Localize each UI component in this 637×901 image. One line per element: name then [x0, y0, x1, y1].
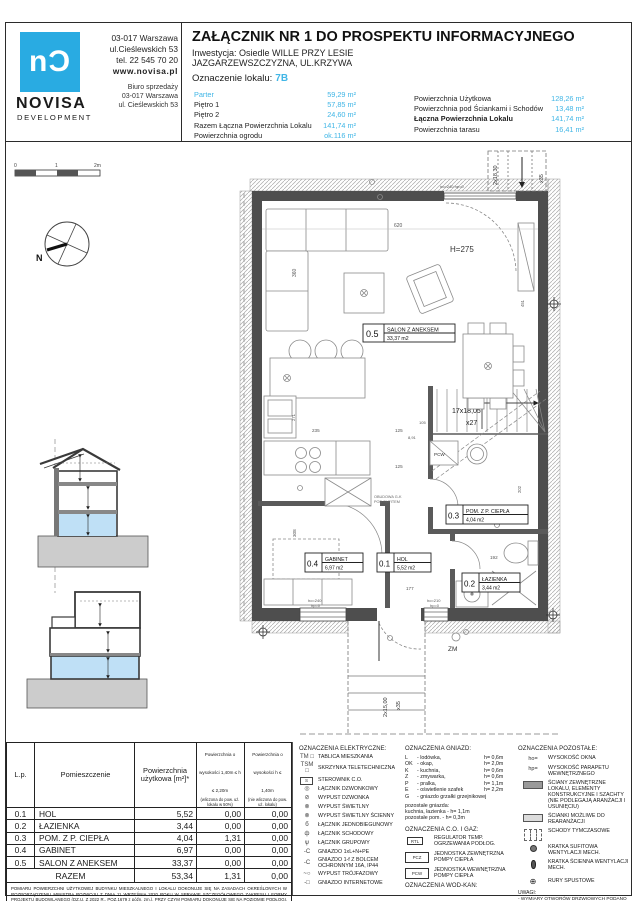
compass-icon: N	[36, 222, 89, 266]
room-label-salon: 0.5 SALON Z ANEKSEM 33,37 m2	[363, 324, 455, 342]
ceiling-vent-icon	[530, 845, 537, 852]
unit-designation: Oznaczenie lokalu:7B	[192, 73, 621, 84]
table-footnote: POMIARU POWIERZCHNI UŻYTKOWEJ BUDYNKU MI…	[6, 883, 292, 901]
legend-other: OZNACZENIA POZOSTAŁE: ho=WYSOKOŚĆ OKNA h…	[512, 746, 629, 895]
svg-text:192: 192	[490, 555, 498, 560]
garden-door-arc	[379, 623, 421, 649]
table-total-row: RAZEM 53,341,310,00	[7, 869, 292, 883]
svg-text:2x15,00: 2x15,00	[383, 697, 389, 717]
table-row: 0.4GABINET 6,970,000,00	[7, 844, 292, 856]
stair-switch-icon: ф	[299, 832, 315, 838]
svg-text:271: 271	[291, 413, 296, 421]
room-label-hol: 0.1 HOL 5,52 m2	[377, 553, 431, 572]
svg-text:0.2: 0.2	[464, 580, 476, 589]
legend-area: OZNACZENIA ELEKTRYCZNE: TM □TABLICA MIES…	[293, 742, 631, 895]
area-table: L.p. Pomieszczenie Powierzchnia użytkowa…	[6, 742, 292, 883]
area-row: Powierzchnia pod Ściankami i Schodów13,4…	[414, 104, 584, 114]
svg-text:2x18,30: 2x18,30	[493, 165, 499, 185]
door-arc	[452, 541, 480, 569]
investment-line-1: Inwestycja: Osiedle WILLE PRZY LESIE	[192, 48, 621, 58]
temporary-stairs-icon	[524, 829, 542, 841]
legend-title: OZNACZENIA POZOSTAŁE:	[518, 746, 629, 752]
svg-text:HOL: HOL	[397, 557, 408, 563]
legend-title-wod-kan: OZNACZENIA WOD-KAN:	[405, 883, 512, 889]
table-row: 0.2ŁAZIENKA 3,440,000,00	[7, 820, 292, 832]
svg-text:POD SUFITEM: POD SUFITEM	[374, 500, 400, 504]
svg-text:125: 125	[395, 464, 403, 469]
area-row: Powierzchnia Użytkowa128,26 m²	[414, 94, 584, 104]
pcw-icon: PCW	[405, 868, 429, 879]
door-arc	[330, 503, 382, 555]
svg-text:x35: x35	[539, 174, 545, 183]
svg-text:6,97 m2: 6,97 m2	[325, 566, 343, 572]
svg-text:0: 0	[14, 163, 17, 169]
bottom-section: L.p. Pomieszczenie Powierzchnia użytkowa…	[6, 742, 631, 895]
movable-wall-swatch	[523, 814, 543, 822]
svg-text:ho=240 hp=0: ho=240 hp=0	[440, 184, 464, 189]
pcz-icon: PCZ	[405, 852, 429, 863]
building-section-flat	[27, 592, 147, 708]
svg-text:0.4: 0.4	[307, 560, 319, 569]
floor-plan-svg: 0 1 2m N	[6, 142, 631, 742]
novisa-logo-icon: nƆ	[20, 32, 80, 92]
room-label-pom-ciepla: 0.3 POM. Z P. CIEPŁA 4,04 m2	[446, 505, 528, 524]
developer-logo-cell: nƆ NOVISA DEVELOPMENT 03-017 Warszawa ul…	[6, 23, 182, 141]
contact-phone: tel. 22 545 70 20	[86, 55, 178, 66]
zm-label: ZM	[448, 646, 457, 653]
legend-sockets: OZNACZENIA GNIAZD: L- lodówka,h= 0,6m OK…	[403, 746, 512, 895]
svg-text:33,37 m2: 33,37 m2	[387, 336, 409, 342]
prospectus-page: nƆ NOVISA DEVELOPMENT 03-017 Warszawa ul…	[0, 0, 637, 901]
contact-city: 03-017 Warszawa	[86, 33, 178, 44]
tsm-icon: TSM □	[299, 763, 315, 775]
area-row: Piętro 224,60 m²	[194, 110, 356, 120]
svg-text:125: 125	[395, 428, 403, 433]
svg-text:105: 105	[419, 420, 426, 425]
entry-door-arc	[446, 203, 516, 271]
contact-street: ul.Cieślewskich 53	[86, 44, 178, 55]
svg-text:GABINET: GABINET	[325, 557, 349, 563]
table-row: 0.5SALON Z ANEKSEM 33,370,000,00	[7, 856, 292, 868]
contact-web[interactable]: www.novisa.pl	[86, 66, 178, 77]
floor-plan-drawing: 0 1 2m N	[6, 142, 631, 742]
door-arc	[430, 479, 458, 507]
tm-icon: TM □	[299, 755, 315, 761]
svg-text:1: 1	[55, 163, 58, 169]
ceiling-height-label: H=275	[450, 245, 474, 254]
svg-text:SALON Z ANEKSEM: SALON Z ANEKSEM	[387, 328, 439, 334]
svg-text:620: 620	[394, 223, 403, 229]
co-controller-icon: S	[300, 777, 313, 785]
table-row: 0.1HOL 5,520,000,00	[7, 808, 292, 820]
legend-title: OZNACZENIA C.O. I GAZ:	[405, 827, 512, 833]
area-row: Parter59,29 m²	[194, 90, 356, 100]
room-label-lazienka: 0.2 ŁAZIENKA 3,44 m2	[462, 573, 520, 592]
svg-text:235: 235	[312, 428, 320, 433]
logo-subtitle: DEVELOPMENT	[17, 113, 92, 122]
svg-text:451: 451	[520, 299, 525, 307]
svg-text:8,91: 8,91	[408, 435, 417, 440]
svg-text:ŁAZIENKA: ŁAZIENKA	[482, 577, 508, 583]
svg-text:hp=0: hp=0	[430, 603, 440, 608]
scale-bar: 0 1 2m	[14, 163, 101, 176]
svg-text:4,04 m2: 4,04 m2	[466, 518, 484, 524]
svg-text:0.3: 0.3	[448, 512, 460, 521]
wall-light-outlet-icon: ⊗	[299, 814, 315, 820]
svg-text:OBUDOWA G-K: OBUDOWA G-K	[374, 495, 402, 499]
svg-text:308: 308	[292, 529, 297, 537]
sales-office: Biuro sprzedaży 03-017 Warszawa ul. Cieś…	[86, 83, 178, 110]
header-info: ZAŁĄCZNIK NR 1 DO PROSPEKTU INFORMACYJNE…	[182, 23, 631, 141]
svg-text:N: N	[36, 253, 43, 263]
group-switch-icon: ѱ	[299, 841, 315, 847]
socket-icon: -C	[299, 850, 315, 856]
bell-switch-icon: ◎	[299, 787, 315, 793]
area-summary-left: Parter59,29 m² Piętro 157,85 m² Piętro 2…	[194, 90, 356, 142]
area-summary-right: Powierzchnia Użytkowa128,26 m² Powierzch…	[414, 94, 584, 136]
svg-text:202: 202	[517, 485, 522, 493]
remarks: UWAGI: - WYMIARY OTWORÓW DRZWIOWYCH PODA…	[518, 891, 629, 901]
area-table-wrap: L.p. Pomieszczenie Powierzchnia użytkowa…	[6, 742, 293, 895]
svg-text:x35: x35	[396, 701, 402, 710]
light-outlet-icon: ⊗	[299, 805, 315, 811]
developer-contact: 03-017 Warszawa ul.Cieślewskich 53 tel. …	[86, 33, 178, 77]
ho-symbol: ho=	[528, 756, 537, 762]
internet-socket-icon: -□	[299, 881, 315, 887]
table-header-row: L.p. Pomieszczenie Powierzchnia użytkowa…	[7, 743, 292, 808]
page-title: ZAŁĄCZNIK NR 1 DO PROSPEKTU INFORMACYJNE…	[192, 29, 621, 45]
area-row: Łączna Powierzchnia Lokalu141,74 m²	[414, 114, 584, 124]
svg-text:177: 177	[406, 586, 414, 591]
area-row: Powierzchnia ogroduok.116 m²	[194, 131, 356, 141]
svg-text:3,44 m2: 3,44 m2	[482, 586, 500, 592]
room-label-gabinet: 0.4 GABINET 6,97 m2	[305, 553, 363, 572]
svg-text:0.1: 0.1	[379, 560, 391, 569]
exterior-wall-swatch	[523, 781, 543, 789]
header: nƆ NOVISA DEVELOPMENT 03-017 Warszawa ul…	[6, 23, 631, 142]
table-row: 0.3POM. Z P. CIEPŁA 4,041,310,00	[7, 832, 292, 844]
entrance-steps-bottom: 2x15,00 x35	[300, 621, 560, 734]
building-section-gable	[38, 439, 148, 593]
legend-title: OZNACZENIA GNIAZD:	[405, 746, 512, 752]
three-phase-icon: ~○	[299, 872, 315, 878]
svg-text:hp=0: hp=0	[311, 603, 321, 608]
area-row: Razem Łączna Powierzchnia Lokalu141,74 m…	[194, 121, 356, 131]
page-frame: nƆ NOVISA DEVELOPMENT 03-017 Warszawa ul…	[5, 22, 632, 896]
rtl-icon: RTL	[407, 837, 423, 845]
socket-ip44-icon: -C	[299, 861, 315, 867]
svg-text:360: 360	[292, 268, 298, 277]
legend-title: OZNACZENIA ELEKTRYCZNE:	[299, 746, 403, 752]
area-row: Piętro 157,85 m²	[194, 100, 356, 110]
legend-electrical: OZNACZENIA ELEKTRYCZNE: TM □TABLICA MIES…	[299, 746, 403, 895]
svg-text:0.5: 0.5	[366, 329, 379, 339]
wall-vent-icon	[531, 860, 536, 869]
bell-outlet-icon: ⊘	[299, 796, 315, 802]
downpipe-legend-icon: ⊕	[530, 878, 537, 886]
area-row: Powierzchnia tarasu16,41 m²	[414, 125, 584, 135]
svg-text:2m: 2m	[94, 163, 101, 169]
logo-name: NOVISA	[16, 95, 86, 113]
logo-mark: nƆ	[29, 45, 71, 79]
hp-symbol: hp=	[528, 766, 537, 772]
svg-text:5,52 m2: 5,52 m2	[397, 566, 415, 572]
pcw-label: PCW	[434, 452, 445, 457]
area-summary: Parter59,29 m² Piętro 157,85 m² Piętro 2…	[192, 90, 621, 142]
svg-text:x27: x27	[466, 420, 477, 427]
svg-text:POM. Z P. CIEPŁA: POM. Z P. CIEPŁA	[466, 509, 510, 515]
investment-line-2: JAZGARZEWSZCZYZNA, UL.KRZYWA	[192, 58, 621, 68]
single-pole-switch-icon: б	[299, 823, 315, 829]
unit-number: 7B	[275, 73, 288, 84]
